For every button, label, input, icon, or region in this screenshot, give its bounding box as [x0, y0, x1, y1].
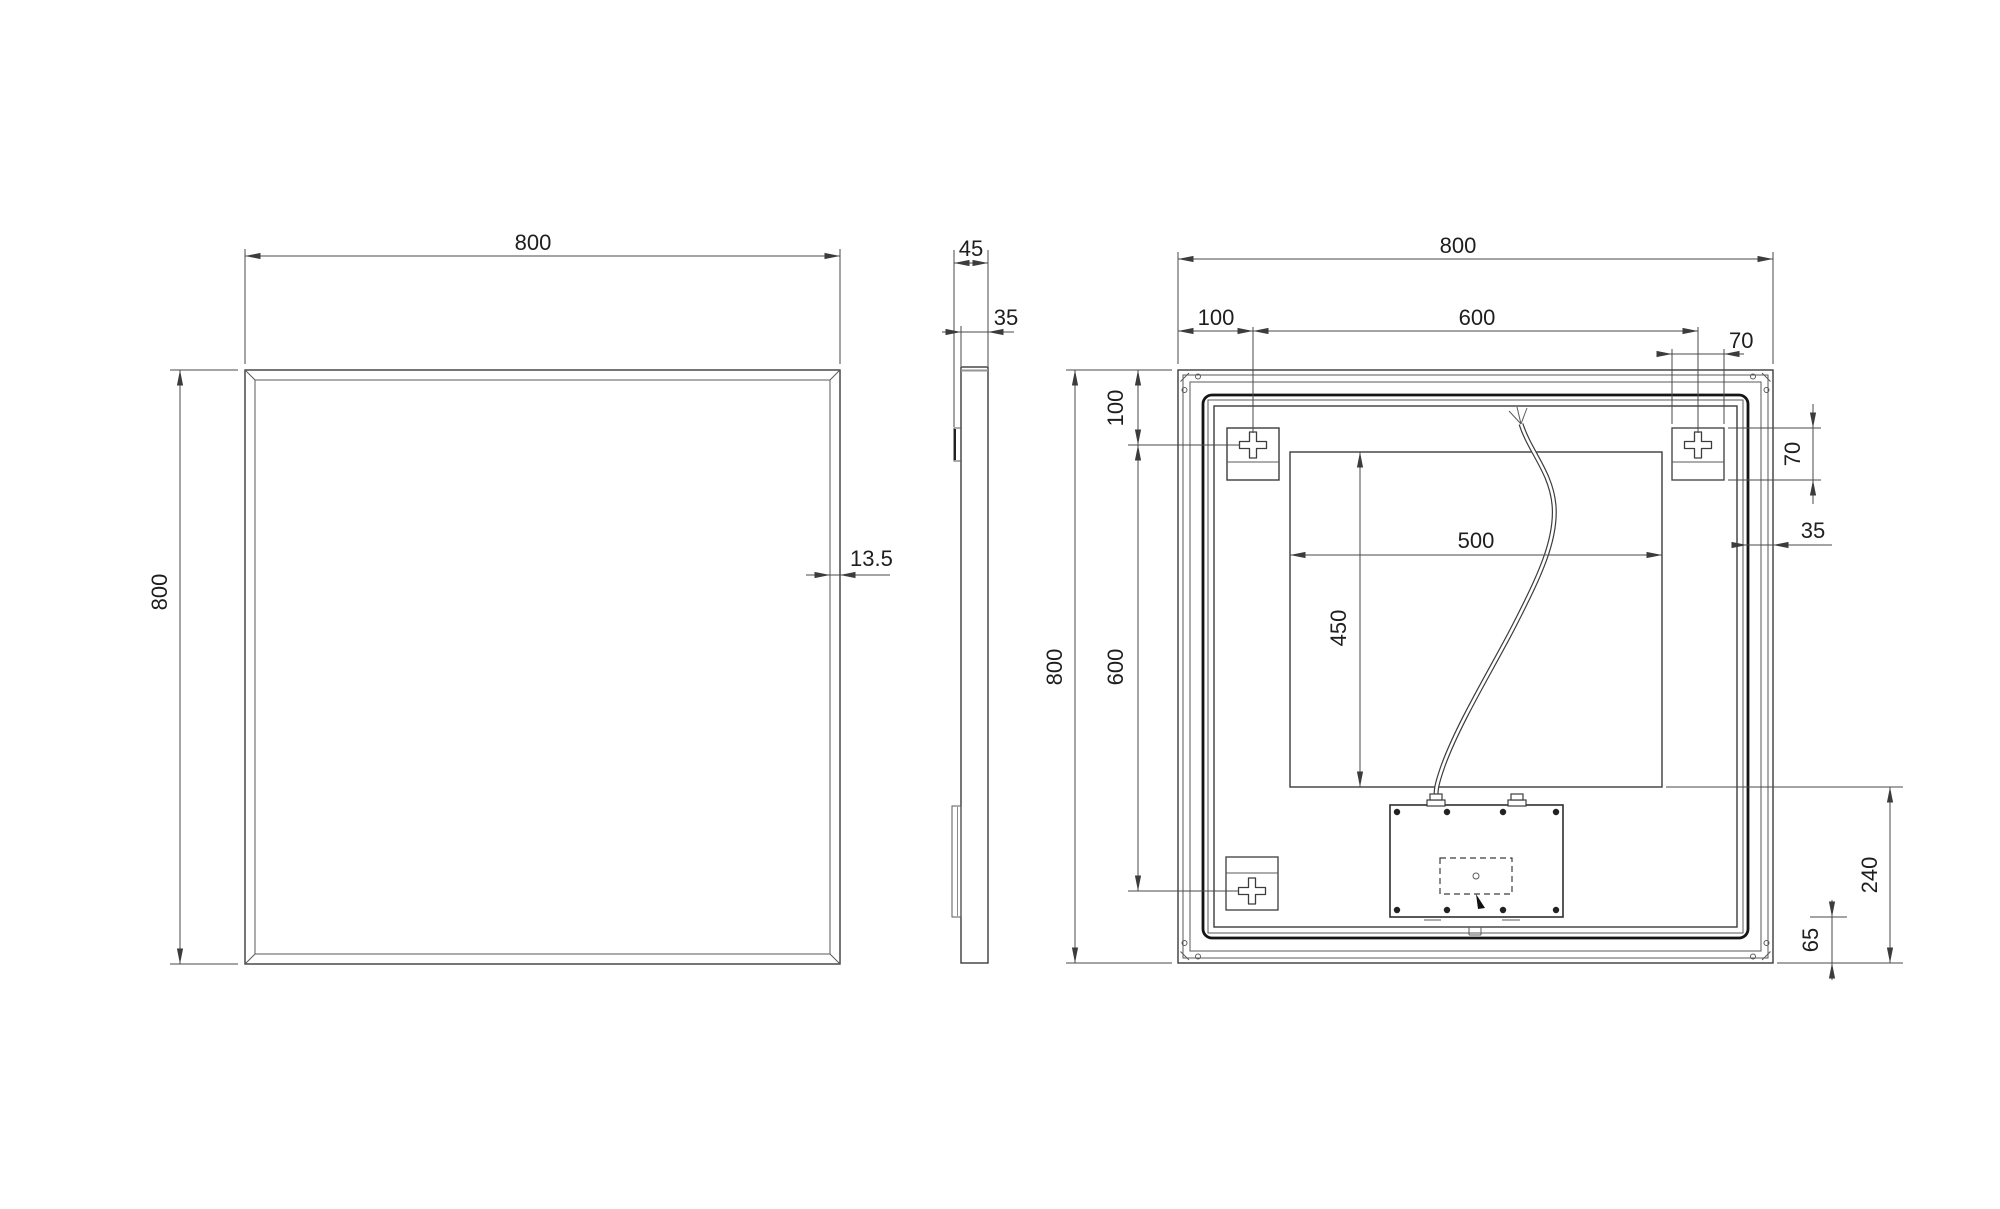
mirror-technical-drawing: 800 800 13.5	[0, 0, 2000, 1209]
mounting-plate-bottom-left	[1226, 857, 1278, 910]
dim-front-width-label: 800	[515, 230, 552, 255]
dim-back-spacing-left-label: 600	[1103, 649, 1128, 686]
dim-back-spacing-top-label: 600	[1459, 305, 1496, 330]
dim-front-height-label: 800	[147, 574, 172, 611]
drawing-svg: 800 800 13.5	[0, 0, 2000, 1209]
dim-box-offset-label: 65	[1798, 928, 1823, 952]
dim-front-frame-label: 13.5	[850, 546, 893, 571]
mounting-plate-top-right	[1672, 428, 1724, 480]
cable-gland-left	[1427, 794, 1445, 806]
dim-bracket-width-label: 70	[1729, 328, 1753, 353]
dim-back-offset-top-label: 100	[1198, 305, 1235, 330]
dim-side-depth-label: 45	[959, 236, 983, 261]
dim-frame-margin-label: 35	[1801, 518, 1825, 543]
dim-cutout-width-label: 500	[1458, 528, 1495, 553]
dim-side-body-label: 35	[994, 305, 1018, 330]
junction-box-body	[1390, 805, 1563, 917]
dim-box-zone-label: 240	[1857, 857, 1882, 894]
dim-back-width-label: 800	[1440, 233, 1477, 258]
dim-bracket-height-label: 70	[1780, 442, 1805, 466]
paper-background	[0, 0, 2000, 1209]
dim-back-height-label: 800	[1042, 649, 1067, 686]
dim-cutout-height-label: 450	[1326, 610, 1351, 647]
cable-gland-right	[1508, 794, 1526, 806]
junction-box	[1390, 794, 1563, 920]
dim-back-offset-left-label: 100	[1103, 390, 1128, 427]
